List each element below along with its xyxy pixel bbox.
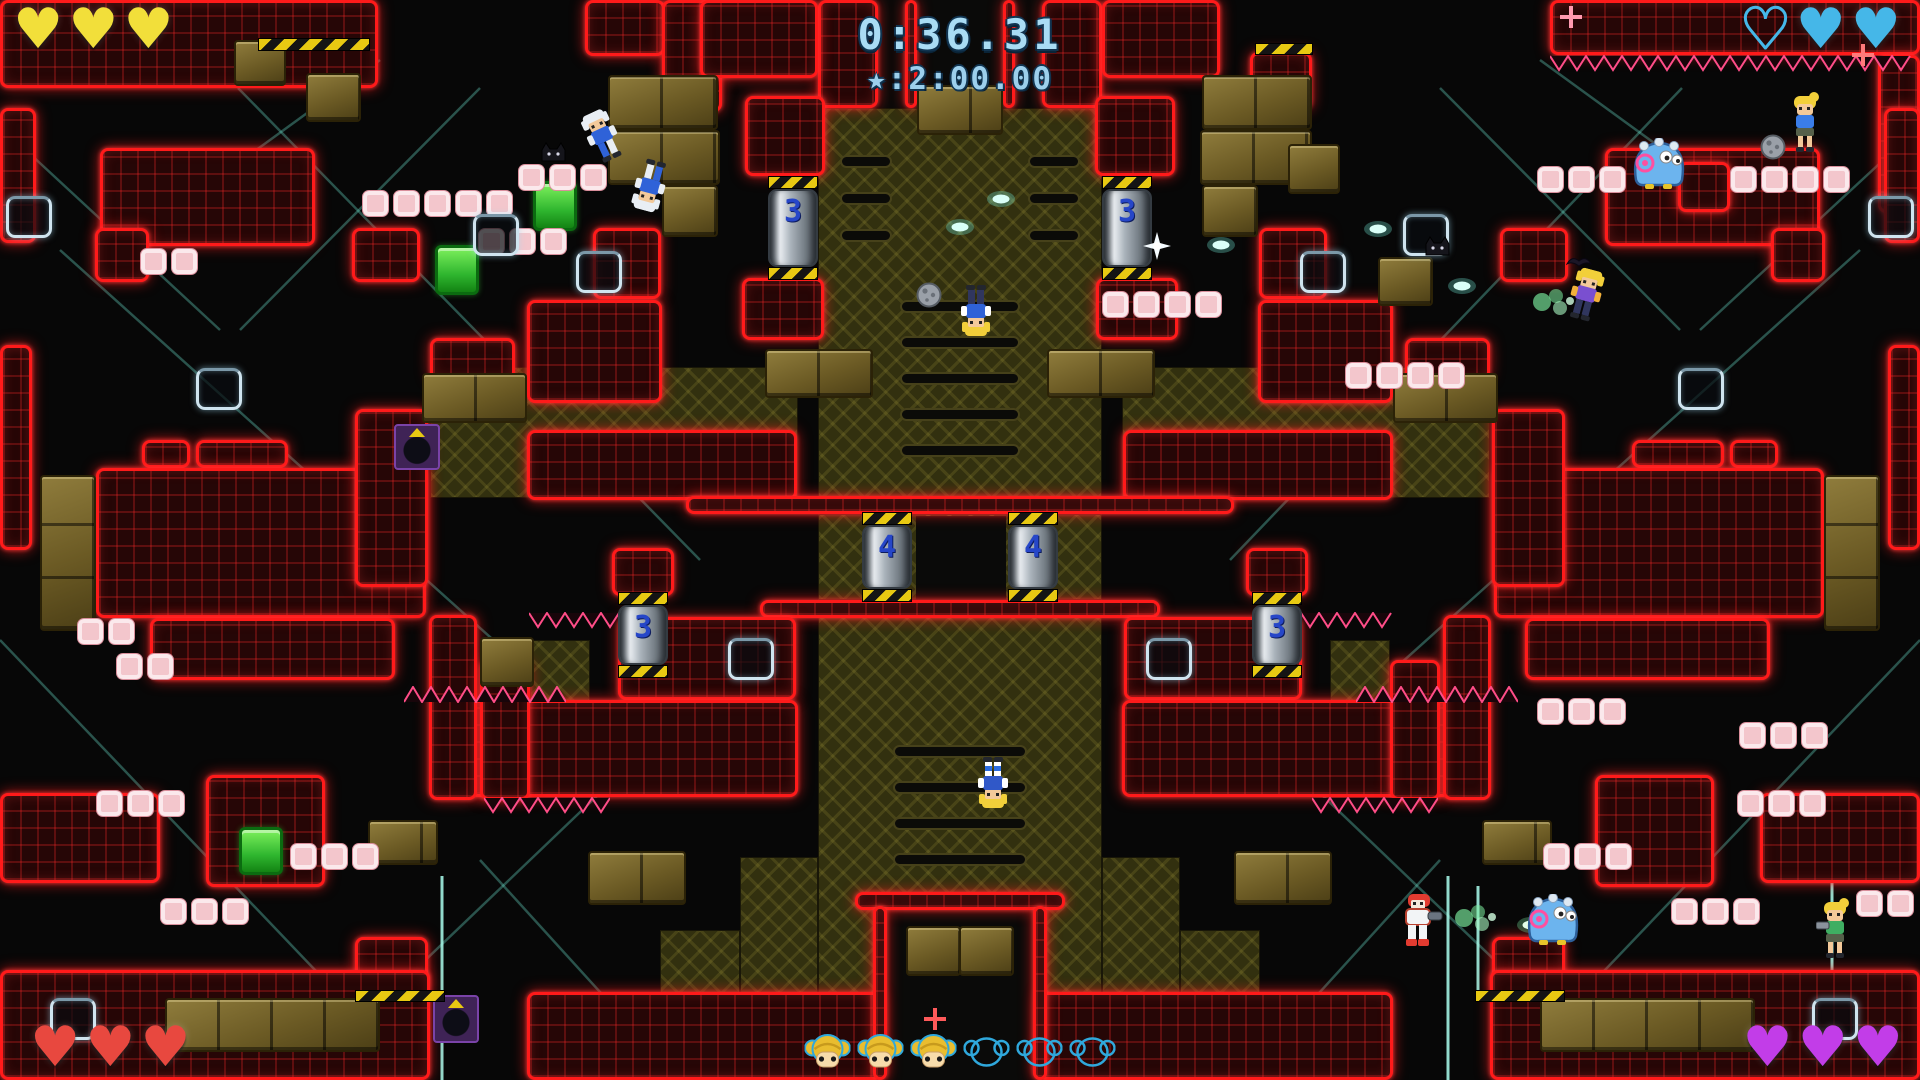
enemy-blob-sprite [1524,894,1584,964]
hazard-cap [768,176,818,189]
cannon-block [433,995,479,1043]
metal-crate-block [40,475,96,631]
pink-tile [1730,166,1757,193]
metal-crate-block [1202,75,1312,130]
game-screen: 3 3 4 4 3 3 [0,0,1920,1080]
vent-slot [900,444,1020,457]
heart-icon: ♥ [1742,1020,1792,1076]
metal-crate-block [1540,998,1755,1052]
muzzle-flash-white [1143,232,1203,302]
piston-number: 4 [878,533,896,563]
piston-cylinder: 3 [768,189,818,267]
pink-tile [540,228,567,255]
pink-tile [1801,722,1828,749]
pink-tile [1823,166,1850,193]
player-token-filled-icon [858,1032,904,1076]
piston-4: 4 [862,512,912,602]
metal-crate-block [765,349,873,398]
pink-tile [1887,890,1914,917]
door-bracket [1300,251,1346,293]
hazard-cap [1008,512,1058,525]
player-sprite [950,738,1010,808]
metal-crate-block [1482,820,1552,865]
red-grid-block [1095,96,1175,176]
enemy-blob-sprite [1630,138,1690,208]
enemy-cat-sprite [538,140,598,210]
spikes [404,686,566,702]
player-token-counter [805,1032,1116,1076]
red-grid-block [0,345,32,550]
player-token-filled-icon [911,1032,957,1076]
metal-crate-block [422,373,527,423]
hazard-cap [1102,176,1152,189]
piston-3: 3 [1252,592,1302,678]
piston-number: 3 [1268,613,1286,643]
metal-crate-block [1047,349,1155,398]
piston-number: 4 [1024,533,1042,563]
red-grid-block [585,0,665,56]
pink-tile [1599,698,1626,725]
pink-tile [290,843,317,870]
match-timer: 0:36.31 ★:2:00.00 [857,10,1062,97]
door-bracket [1678,368,1724,410]
red-grid-block [760,600,1160,618]
piston-cylinder: 3 [1252,605,1302,665]
pink-tile [1599,166,1626,193]
red-grid-block [1730,440,1778,468]
player-token-empty-icon [964,1032,1010,1076]
hazard-cap [862,589,912,602]
red-grid-block [527,300,662,403]
piston-cylinder: 4 [1008,525,1058,589]
heart-icon: ♥ [140,1020,190,1076]
cannon-block [394,424,440,470]
red-grid-block [1258,300,1393,403]
metal-crate-block [165,998,380,1052]
red-grid-block [1525,618,1770,680]
bomb-ball [916,282,976,352]
metal-crate-block [480,637,534,687]
vent-slot [840,155,892,168]
vent-slot [840,229,892,242]
red-grid-block [142,440,190,468]
red-grid-block [1443,615,1491,800]
pink-tile [1568,698,1595,725]
red-grid-block [1390,660,1440,800]
star-target-time: ★:2:00.00 [857,61,1062,97]
pink-tile [147,653,174,680]
hazard-stripe [1475,990,1565,1002]
spikes [1312,797,1438,813]
vent-slot [840,192,892,205]
sparkle [1560,6,1620,76]
pink-tile [393,190,420,217]
door-bracket [473,214,519,256]
pink-tile [1739,722,1766,749]
pink-tile [222,898,249,925]
crosshatch-panel [1102,857,1180,1000]
heart-icon: ♥ [1796,2,1846,58]
hazard-stripe [1255,43,1313,55]
projectile-cyan [945,218,1005,288]
pink-tile [77,618,104,645]
red-grid-block [1492,409,1565,587]
pink-tile [1768,790,1795,817]
heart-icon: ♥ [13,2,63,58]
pink-tile [191,898,218,925]
hazard-cap [768,267,818,280]
vent-slot [1028,155,1080,168]
hazard-cap [1252,592,1302,605]
heart-icon: ♥ [1798,1020,1848,1076]
red-grid-block [527,430,797,500]
metal-crate-block [906,926,961,976]
pink-tile [1733,898,1760,925]
green-block [435,245,479,295]
piston-4: 4 [1008,512,1058,602]
piston-number: 3 [1118,197,1136,227]
heart-icon: ♥ [68,2,118,58]
vent-slot [893,817,1027,830]
player4-health: ♥♥♥ [1742,1020,1908,1076]
heart-icon: ♥ [1851,2,1901,58]
vent-slot [893,853,1027,866]
piston-cylinder: 4 [862,525,912,589]
heart-icon: ♥ [1853,1020,1903,1076]
red-grid-block [855,892,1065,910]
hazard-cap [862,512,912,525]
red-grid-block [612,548,674,596]
pink-tile [1605,843,1632,870]
piston-3: 3 [768,176,818,280]
player1-health: ♥♥♥ [13,2,179,58]
player-token-empty-icon [1017,1032,1063,1076]
hazard-stripe [258,38,370,51]
red-grid-block [1595,775,1714,887]
player-armor-sprite [1400,894,1460,964]
red-grid-block [150,618,395,680]
projectile-cyan [1363,220,1423,290]
red-grid-block [700,0,818,78]
pink-tile [1799,790,1826,817]
red-grid-block [1500,228,1568,282]
pink-tile [1671,898,1698,925]
pink-tile [1376,362,1403,389]
pink-tile [140,248,167,275]
metal-crate-block [1288,144,1340,194]
pink-tile [1537,698,1564,725]
metal-crate-block [1824,475,1880,631]
piston-cylinder: 3 [618,605,668,665]
piston-3: 3 [618,592,668,678]
player-token-empty-icon [1070,1032,1116,1076]
red-grid-block [1771,228,1825,282]
pink-tile [1568,166,1595,193]
door-bracket [1868,196,1914,238]
crosshatch-panel [660,930,740,1000]
door-bracket [196,368,242,410]
player3-health: ♥♥♥ [30,1020,196,1076]
pink-tile [1543,843,1570,870]
pink-tile [1574,843,1601,870]
vent-slot [900,372,1020,385]
red-grid-block [1632,440,1724,468]
door-bracket [6,196,52,238]
pink-tile [116,653,143,680]
metal-crate-block [959,926,1014,976]
pink-tile [108,618,135,645]
red-grid-block [742,278,824,340]
metal-crate-block [1234,851,1332,905]
enemy-bat-sprite [1566,254,1626,324]
hazard-cap [618,592,668,605]
projectile-cyan [1447,277,1507,347]
pink-tile [1407,362,1434,389]
red-grid-block [1888,345,1920,550]
red-grid-block [352,228,420,282]
hazard-cap [1252,665,1302,678]
metal-crate-block [662,185,718,237]
pink-tile [1537,166,1564,193]
heart-icon: ♥ [123,2,173,58]
pink-tile [127,790,154,817]
heart-empty-icon: ♥ [1740,2,1790,58]
red-grid-block [1102,0,1220,78]
player-girl-sprite [1816,898,1876,968]
door-bracket [1146,638,1192,680]
metal-crate-block [1202,185,1258,237]
pink-tile [455,190,482,217]
hazard-stripe [355,990,445,1002]
pink-tile [1770,722,1797,749]
red-grid-block [745,96,825,176]
spikes [484,797,610,813]
pink-tile [96,790,123,817]
piston-number: 3 [784,197,802,227]
red-grid-block [196,440,288,468]
crosshatch-panel [740,857,818,1000]
pink-tile [160,898,187,925]
door-bracket [728,638,774,680]
red-grid-block [1246,548,1308,596]
piston-number: 3 [634,613,652,643]
heart-icon: ♥ [85,1020,135,1076]
green-block [239,827,283,875]
pink-tile [486,190,513,217]
hazard-cap [1008,589,1058,602]
pink-tile [158,790,185,817]
pink-tile [362,190,389,217]
heart-icon: ♥ [30,1020,80,1076]
pink-tile [424,190,451,217]
pink-tile [1702,898,1729,925]
dark-recess [916,516,1006,600]
pink-tile [171,248,198,275]
red-grid-block [686,496,1234,514]
pink-tile [321,843,348,870]
pink-tile [1345,362,1372,389]
hazard-cap [618,665,668,678]
timer-value: 0:36.31 [857,10,1062,59]
door-bracket [576,251,622,293]
red-grid-block [429,615,477,800]
player-token-filled-icon [805,1032,851,1076]
red-grid-block [1123,430,1393,500]
crosshatch-panel [1180,930,1260,1000]
bomb-ball [1760,134,1820,204]
pink-tile [1102,291,1129,318]
player2-health: ♥♥♥ [1740,2,1906,58]
metal-crate-block [588,851,686,905]
metal-crate-block [306,73,361,122]
spikes [1356,686,1518,702]
pink-tile [1737,790,1764,817]
vent-slot [900,408,1020,421]
pink-tile [352,843,379,870]
projectile-cyan [1206,236,1266,306]
pink-tile [1438,362,1465,389]
muzzle-flash-green [1452,900,1512,970]
